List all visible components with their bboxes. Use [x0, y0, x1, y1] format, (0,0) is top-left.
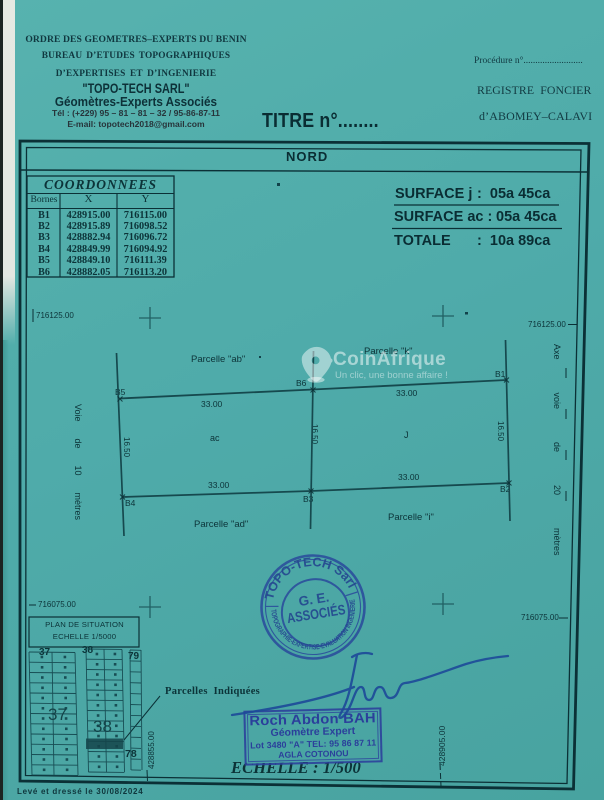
svg-text:ASSOCIÉS: ASSOCIÉS: [286, 601, 347, 626]
